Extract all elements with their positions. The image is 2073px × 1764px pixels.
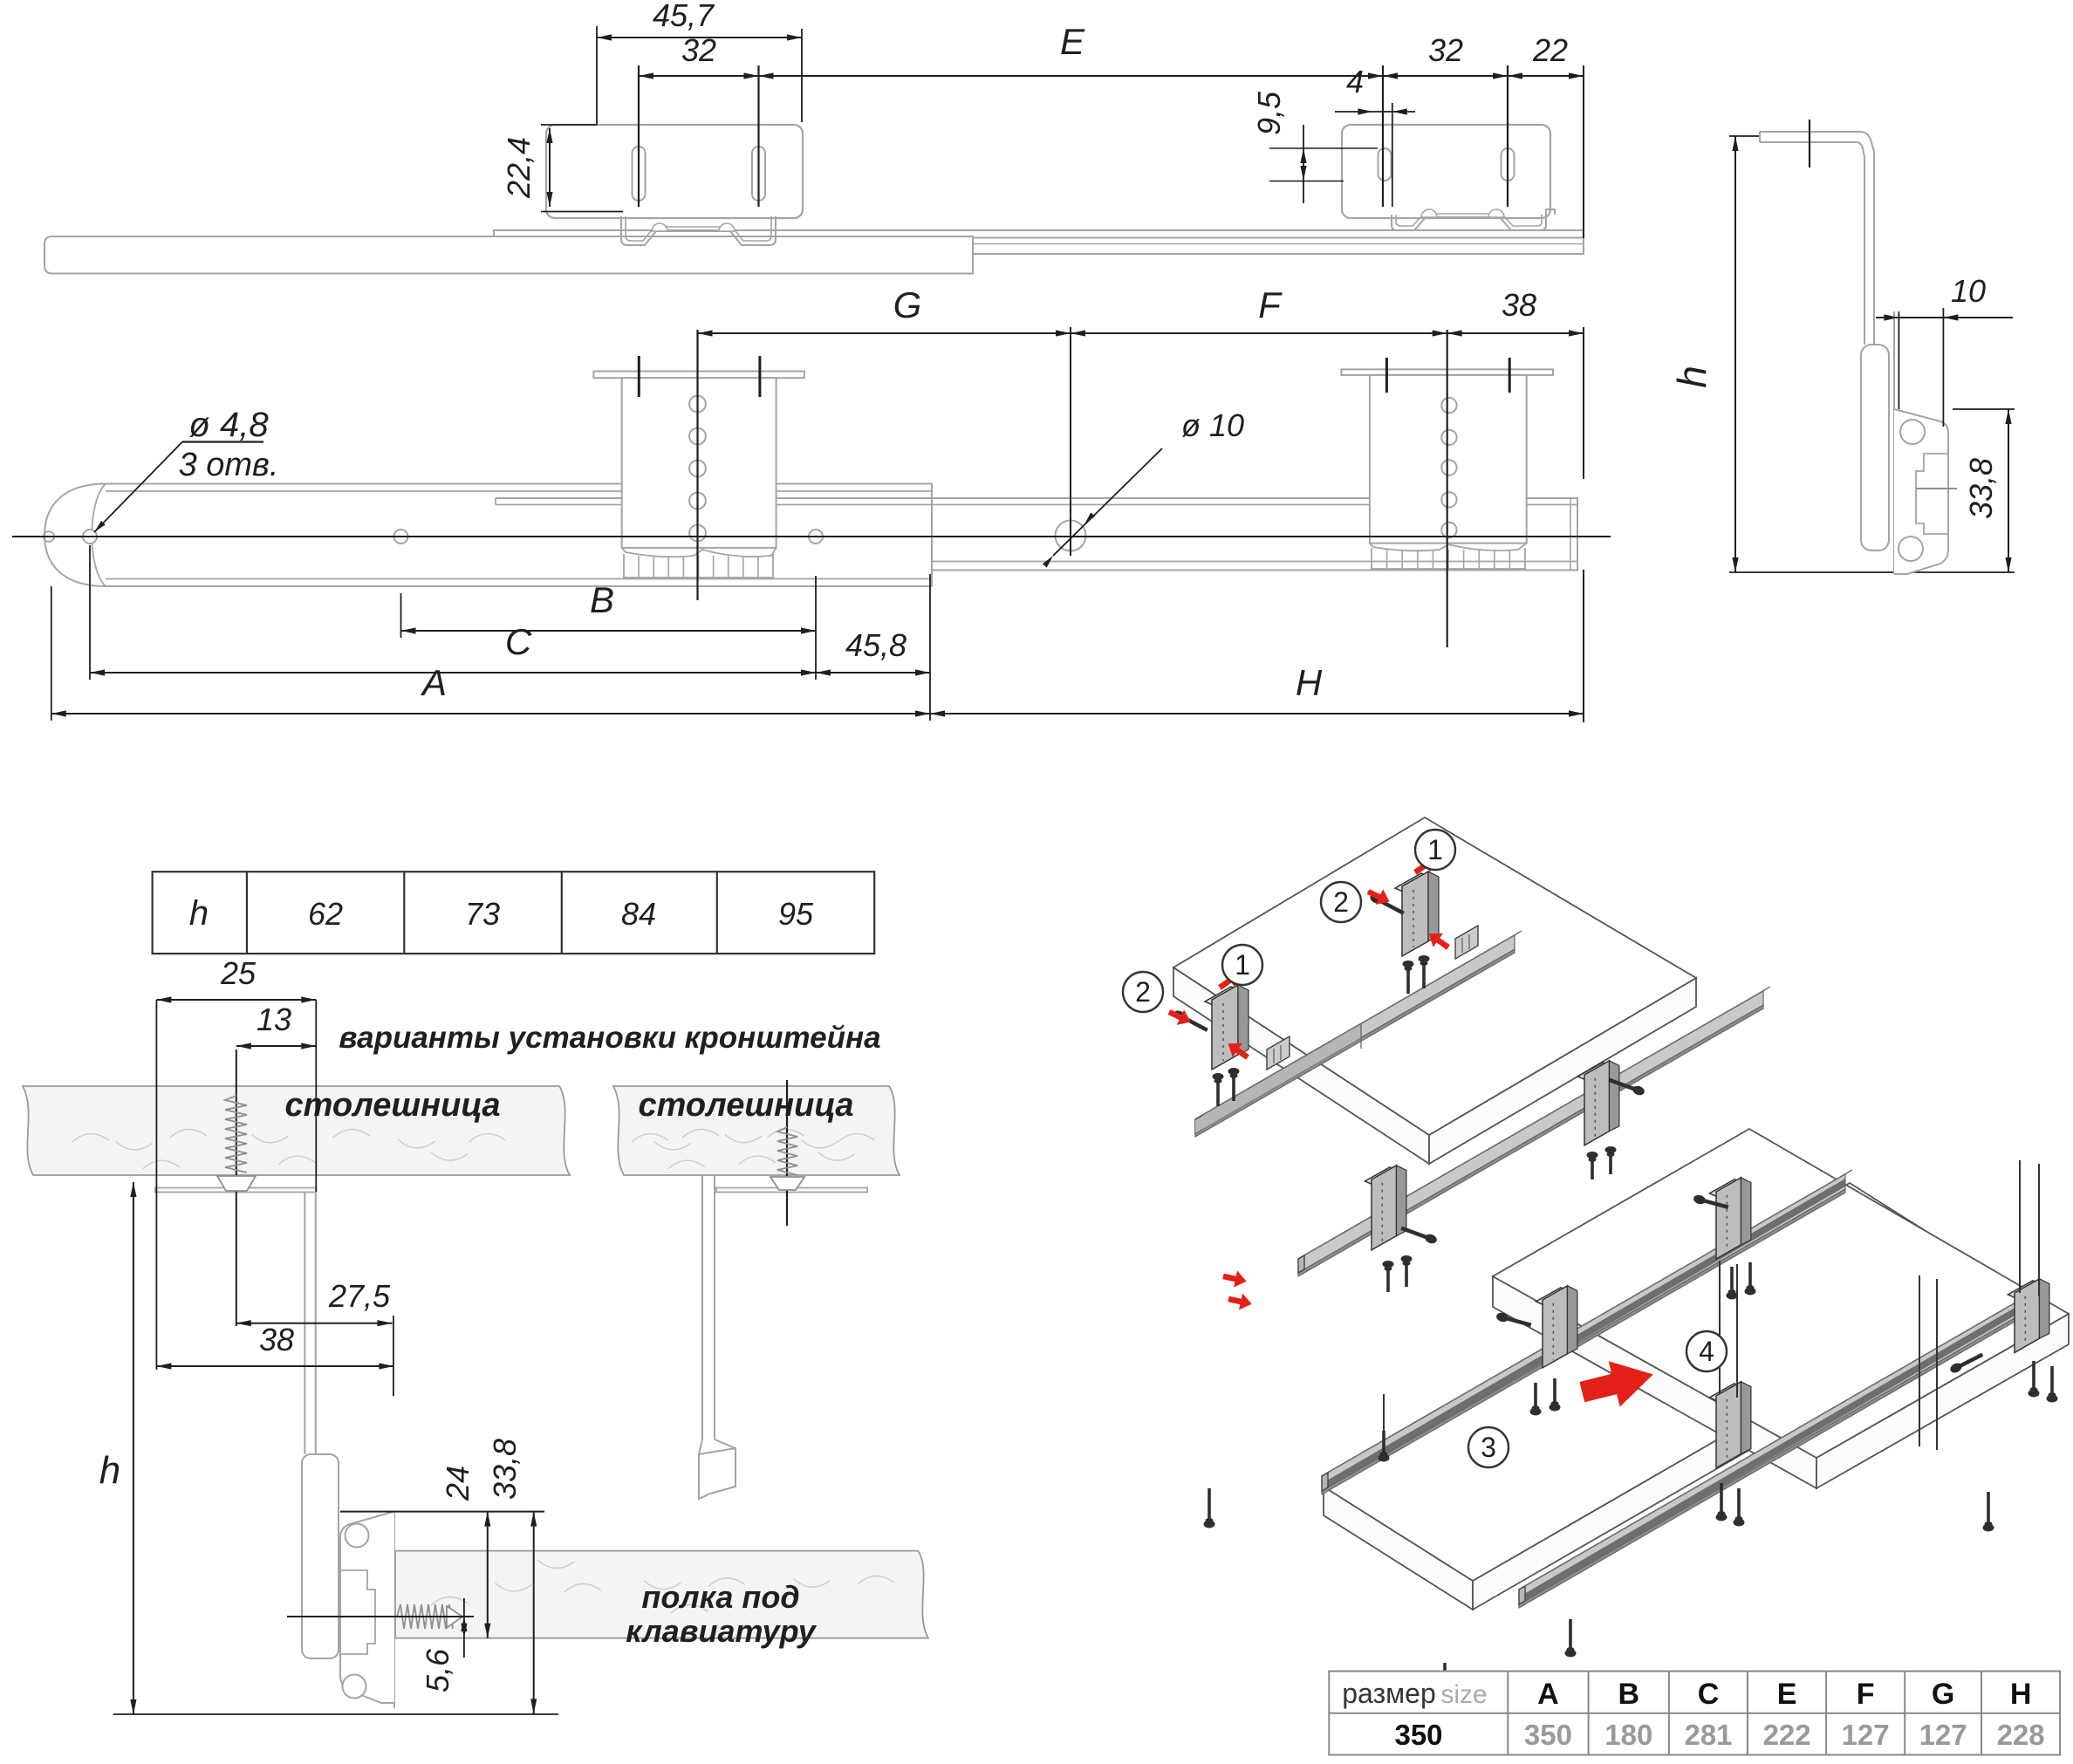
svg-text:84: 84: [621, 896, 656, 932]
svg-text:45,7: 45,7: [653, 0, 715, 33]
svg-text:E: E: [1060, 21, 1085, 62]
svg-text:350: 350: [1524, 1719, 1572, 1751]
svg-text:G: G: [893, 284, 922, 325]
svg-text:2: 2: [1333, 886, 1349, 918]
svg-text:варианты установки кронштейна: варианты установки кронштейна: [339, 1021, 880, 1055]
svg-text:33,8: 33,8: [487, 1439, 523, 1500]
svg-text:32: 32: [1428, 32, 1463, 68]
svg-text:B: B: [1618, 1678, 1640, 1711]
svg-text:45,8: 45,8: [845, 627, 907, 663]
svg-text:180: 180: [1604, 1719, 1652, 1751]
svg-text:95: 95: [778, 896, 814, 932]
svg-text:33,8: 33,8: [1963, 458, 1999, 519]
svg-text:281: 281: [1684, 1719, 1732, 1751]
svg-text:H: H: [1296, 662, 1323, 703]
svg-text:5,6: 5,6: [420, 1648, 455, 1692]
svg-text:h: h: [189, 894, 209, 933]
svg-text:2: 2: [1135, 976, 1151, 1008]
svg-text:h: h: [1669, 366, 1714, 388]
svg-text:F: F: [1857, 1678, 1875, 1711]
svg-text:22,4: 22,4: [501, 137, 537, 199]
svg-text:h: h: [99, 1449, 120, 1492]
svg-text:38: 38: [1502, 287, 1536, 323]
svg-text:9,5: 9,5: [1251, 91, 1287, 135]
svg-text:4: 4: [1346, 64, 1364, 99]
svg-text:3 отв.: 3 отв.: [179, 447, 279, 483]
svg-text:13: 13: [257, 1002, 291, 1037]
svg-text:ø 4,8: ø 4,8: [188, 406, 269, 444]
svg-text:столешница: столешница: [284, 1087, 500, 1124]
svg-text:клавиатуру: клавиатуру: [626, 1613, 818, 1649]
svg-text:полка под: полка под: [641, 1579, 799, 1615]
svg-text:38: 38: [259, 1322, 294, 1357]
svg-text:столешница: столешница: [638, 1087, 853, 1124]
svg-text:62: 62: [308, 896, 343, 932]
svg-text:G: G: [1932, 1678, 1954, 1711]
svg-text:4: 4: [1699, 1336, 1714, 1367]
svg-text:C: C: [1698, 1678, 1720, 1711]
svg-text:127: 127: [1919, 1719, 1967, 1751]
svg-text:ø 10: ø 10: [1181, 407, 1244, 443]
svg-text:size: size: [1440, 1680, 1487, 1709]
svg-text:1: 1: [1235, 949, 1250, 981]
svg-text:350: 350: [1394, 1719, 1442, 1751]
svg-text:C: C: [505, 621, 532, 662]
svg-text:A: A: [1537, 1678, 1559, 1711]
svg-text:25: 25: [220, 955, 257, 991]
svg-text:3: 3: [1481, 1432, 1496, 1463]
svg-text:32: 32: [681, 32, 716, 68]
svg-text:73: 73: [465, 896, 500, 932]
svg-text:F: F: [1258, 284, 1283, 325]
svg-text:24: 24: [440, 1466, 475, 1501]
svg-text:размер: размер: [1342, 1678, 1436, 1709]
svg-text:22: 22: [1532, 32, 1568, 68]
svg-text:H: H: [2010, 1678, 2032, 1711]
svg-text:127: 127: [1842, 1719, 1890, 1751]
svg-text:222: 222: [1763, 1719, 1811, 1751]
svg-text:1: 1: [1427, 834, 1443, 865]
svg-text:A: A: [420, 662, 447, 703]
svg-text:E: E: [1777, 1678, 1797, 1711]
svg-text:10: 10: [1951, 273, 1986, 309]
svg-text:27,5: 27,5: [328, 1278, 391, 1314]
svg-text:228: 228: [1997, 1719, 2045, 1751]
svg-text:B: B: [590, 579, 614, 620]
